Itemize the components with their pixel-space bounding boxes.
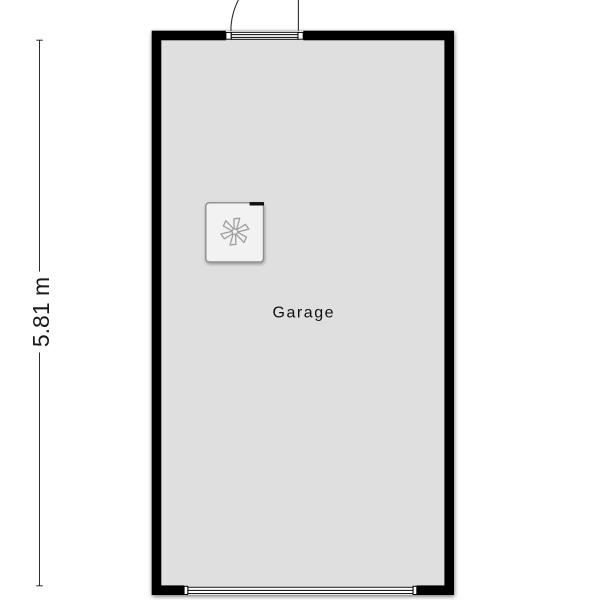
svg-text:Garage: Garage <box>272 305 335 322</box>
svg-text:5.81 m: 5.81 m <box>28 277 54 347</box>
